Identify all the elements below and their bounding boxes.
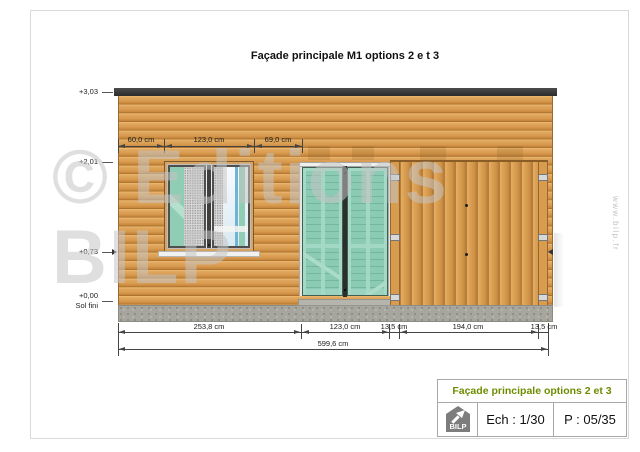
elevation-201: +2,01	[64, 157, 98, 166]
elevation-tick	[102, 92, 113, 93]
title-block: Façade principale options 2 et 3 BILP Ec…	[437, 379, 627, 437]
elevation-tick	[102, 301, 113, 302]
door-stile	[366, 168, 370, 295]
dim-label-total: 599,6 cm	[318, 339, 349, 348]
lintel-patch	[308, 146, 330, 160]
elevation-073: +0,73	[64, 247, 98, 256]
dim-label-top-1: 60,0 cm	[128, 135, 155, 144]
dimension-line-bottom	[118, 332, 548, 333]
dim-label-bottom-2: 123,0 cm	[330, 322, 361, 331]
dim-label-top-3: 69,0 cm	[265, 135, 292, 144]
title-block-logo-cell: BILP	[438, 402, 478, 436]
arrowhead	[119, 347, 125, 351]
lintel-patch	[497, 146, 523, 160]
window-rail-band	[214, 226, 248, 232]
page-number-value: P : 05/35	[554, 402, 626, 436]
sill-arrow-icon	[548, 249, 553, 255]
lintel-patch	[352, 146, 374, 160]
window-sill	[158, 251, 260, 257]
arrowhead	[541, 347, 547, 351]
window	[164, 161, 254, 252]
window-teal-strip	[239, 167, 245, 246]
roof-edge	[114, 88, 557, 96]
hinge-icon	[390, 174, 400, 181]
arrowhead	[256, 144, 262, 148]
door-bolt-dot	[344, 172, 346, 174]
lintel-patch	[420, 146, 446, 160]
hinge-icon	[538, 174, 548, 181]
arrowhead	[247, 144, 253, 148]
website-url-vertical: www.bilp.fr	[611, 196, 620, 251]
door-rail	[303, 244, 342, 248]
door-leaf-left	[302, 167, 343, 296]
bilp-logo-icon: BILP	[444, 405, 472, 433]
dim-label-bottom-1: 253,8 cm	[194, 322, 225, 331]
dim-label-bottom-5: 13,5 cm	[531, 322, 558, 331]
wall-drop-shadow	[554, 233, 564, 307]
dim-tick	[301, 324, 302, 339]
scale-value: Ech : 1/30	[478, 402, 554, 436]
window-shutter-teal	[170, 167, 184, 246]
elevation-000: +0,00	[64, 291, 98, 300]
elevation-000-sub: Sol fini	[64, 301, 98, 310]
title-block-row: BILP Ech : 1/30 P : 05/35	[438, 402, 626, 436]
window-sash-left	[168, 165, 206, 248]
dim-tick	[164, 139, 165, 153]
dimension-line-total	[118, 349, 548, 350]
page-title: Façade principale M1 options 2 e t 3	[130, 50, 560, 62]
hinge-icon	[390, 234, 400, 241]
elevation-tick	[102, 162, 113, 163]
concrete-plinth	[118, 305, 553, 322]
arrowhead	[119, 330, 125, 334]
door-rail	[348, 244, 387, 248]
window-glass-reflection	[223, 167, 248, 246]
hinge-icon	[390, 294, 400, 301]
window-blue-strip	[235, 167, 238, 246]
window-latch-dot	[208, 244, 210, 246]
arrowhead	[303, 330, 309, 334]
hinge-icon	[538, 234, 548, 241]
window-mesh-screen	[184, 167, 204, 246]
dimension-line-top	[118, 146, 302, 147]
door-bolt-dot	[344, 289, 346, 291]
sill-arrow-icon	[112, 249, 117, 255]
garage-door	[390, 160, 548, 305]
door-stile	[321, 168, 325, 295]
dim-tick	[254, 139, 255, 153]
handle-dot	[465, 253, 468, 256]
bilp-logo-text: BILP	[449, 422, 466, 431]
door-meeting-stile	[343, 166, 347, 297]
dim-tick	[302, 139, 303, 153]
dim-label-bottom-4: 194,0 cm	[453, 322, 484, 331]
door-threshold	[298, 299, 392, 306]
window-mullion	[207, 165, 211, 248]
dim-label-bottom-3: 13,5 cm	[381, 322, 408, 331]
arrowhead	[166, 144, 172, 148]
double-door	[299, 162, 391, 304]
window-mesh-screen	[214, 167, 223, 246]
arrowhead	[294, 330, 300, 334]
arrowhead	[119, 144, 125, 148]
door-leaf-right	[347, 167, 388, 296]
dim-label-top-2: 123,0 cm	[194, 135, 225, 144]
title-block-title: Façade principale options 2 et 3	[438, 380, 626, 403]
arrowhead	[157, 144, 163, 148]
elevation-303: +3,03	[64, 87, 98, 96]
hinge-icon	[538, 294, 548, 301]
drawing-canvas: Façade principale M1 options 2 e t 3	[0, 0, 640, 452]
window-sash-right	[212, 165, 250, 248]
handle-dot	[465, 204, 468, 207]
dim-tick	[118, 323, 119, 356]
arrowhead	[295, 144, 301, 148]
